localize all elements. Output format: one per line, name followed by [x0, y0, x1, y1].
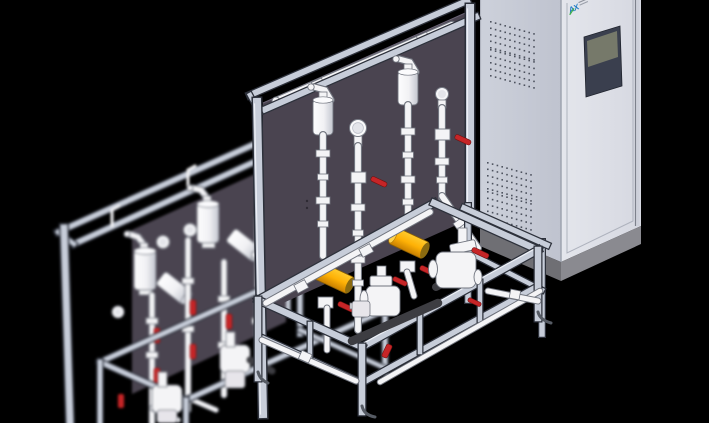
panel-bolt-hole [306, 200, 308, 202]
valve-body [435, 129, 450, 140]
pulsation-dampener [313, 99, 333, 135]
pulsation-dampener [398, 71, 418, 105]
valve-body [351, 172, 366, 183]
panel-bolt-hole [306, 207, 308, 209]
cabinet-right-edge-strip [637, 0, 640, 226]
cad-render: AX [0, 0, 709, 423]
hmi-screen [584, 26, 622, 97]
cad-render-scene: AX [0, 0, 709, 423]
